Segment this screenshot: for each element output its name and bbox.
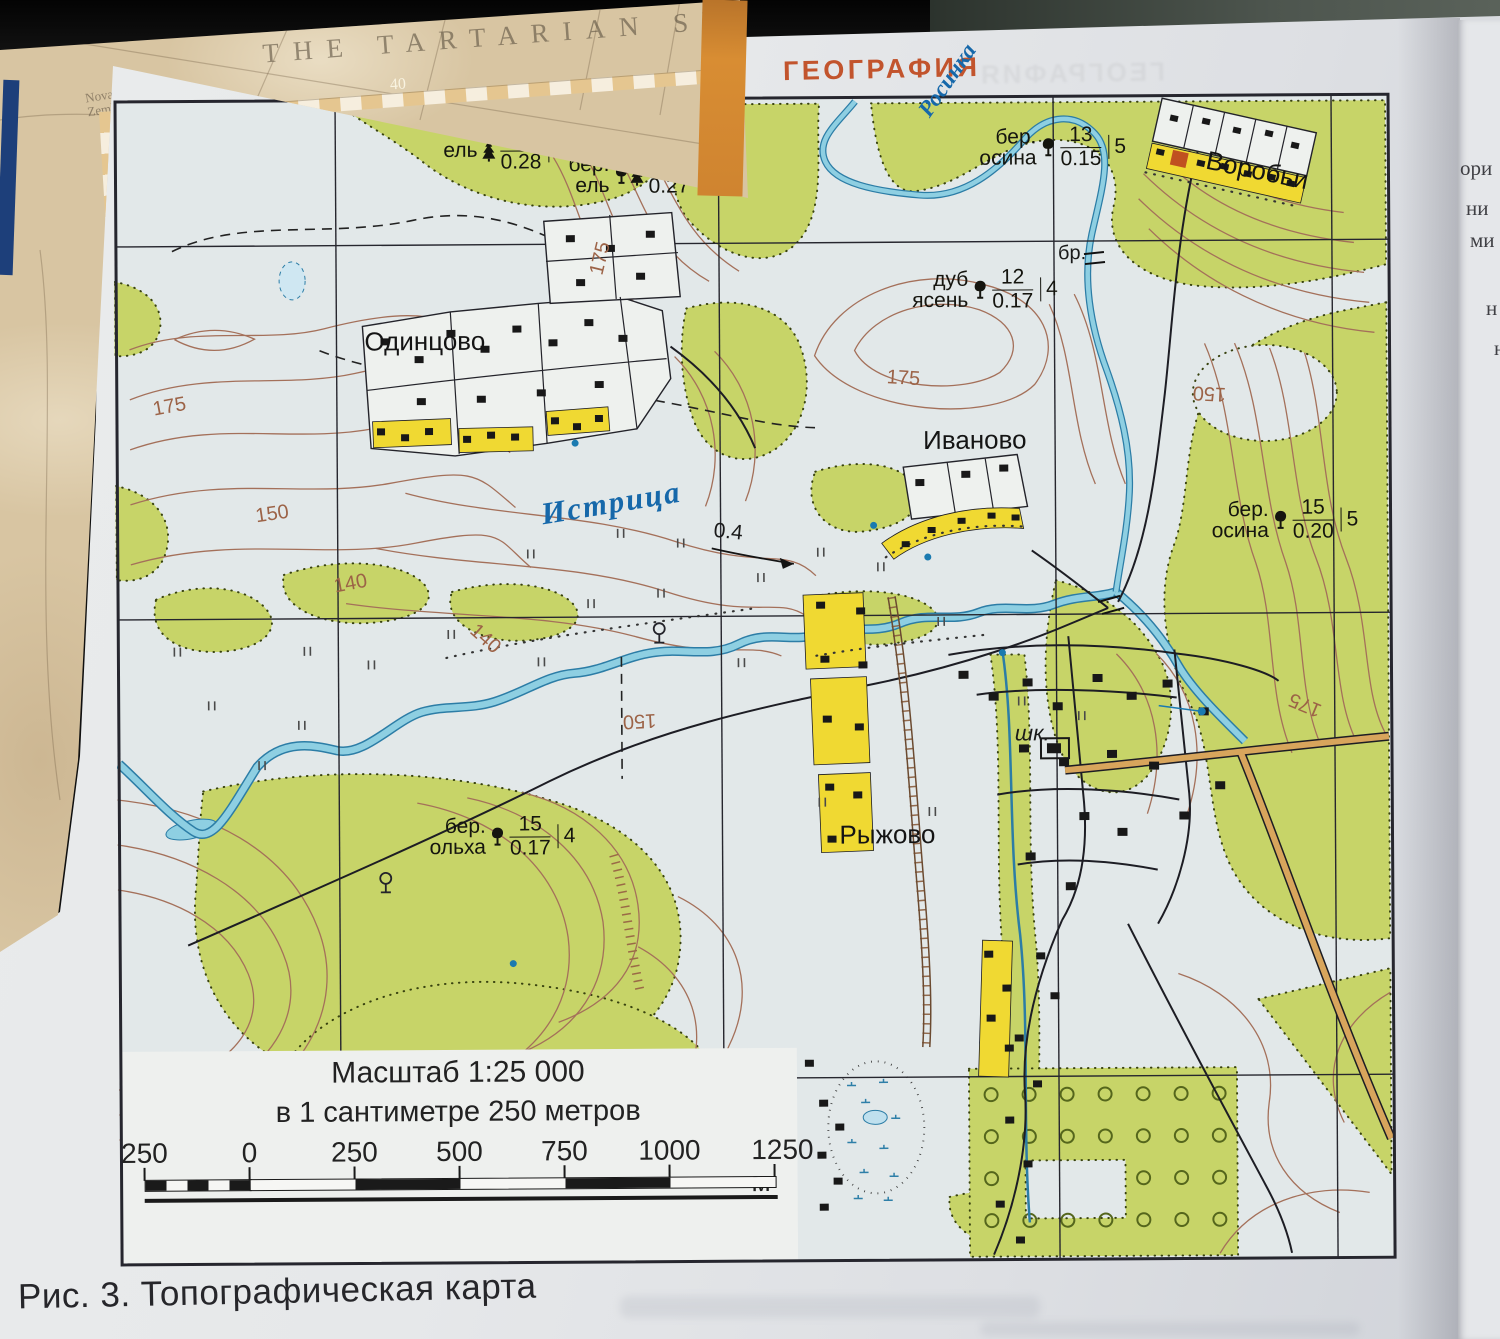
village-label-odintsovo: Одинцово	[364, 326, 485, 358]
textbook-page: ГЕОГРАФИЯ ГЕОГРАФИЯ	[0, 0, 1500, 1339]
stand-spacing: 5	[1341, 508, 1359, 532]
scale-tick-label: 1250 м	[751, 1134, 814, 1198]
intermittent-pond	[279, 262, 305, 300]
scale-title: Масштаб 1:25 000	[119, 1054, 797, 1092]
scale-subtitle: в 1 сантиметре 250 метров	[119, 1094, 797, 1131]
stand-species: ель	[568, 175, 609, 197]
scale-tick-label: 750	[541, 1135, 588, 1167]
river-depth-label: 0.4	[713, 519, 744, 546]
deciduous-tree-icon	[1041, 137, 1055, 158]
scale-tick-label: 250	[331, 1136, 378, 1168]
stand-species: бер.	[1211, 499, 1268, 521]
village-label-ryzhovo: Рыжово	[839, 819, 935, 851]
forest-stand-label: дубясень 120.17 4	[912, 266, 1058, 313]
contour-label: 150	[1192, 381, 1226, 406]
stand-height: 15	[510, 813, 551, 837]
adjacent-page: ори ни ми н н	[1458, 20, 1500, 1339]
cutoff-text: ми	[1470, 228, 1495, 253]
stand-species: ель	[443, 140, 477, 162]
bridge-label: бр.	[1058, 242, 1086, 265]
stand-species: осина	[1212, 520, 1269, 542]
text-bleed	[980, 1322, 1360, 1336]
scale-tick-label: 500	[436, 1136, 483, 1168]
scale-tick-label: 0	[242, 1137, 258, 1169]
school-label: шк.	[1015, 720, 1050, 746]
forest-stand-label: бер.осина 130.15 5	[979, 124, 1126, 171]
orchard	[969, 1067, 1238, 1257]
scale-bar	[250, 1176, 777, 1191]
stand-species: бер.	[429, 816, 485, 838]
scale-bar-baseline	[145, 1195, 778, 1202]
stand-species: ольха	[430, 837, 486, 859]
cutoff-text: н	[1494, 336, 1500, 361]
stand-spacing: 4	[558, 824, 576, 848]
stand-species: дуб	[912, 269, 968, 291]
contour-label: 150	[254, 501, 290, 529]
stand-diameter: 0.17	[510, 837, 551, 860]
scale-tick-label: 1000	[638, 1134, 700, 1166]
stand-diameter: 0.20	[1293, 520, 1334, 543]
scale-bar-extension	[145, 1179, 252, 1192]
deciduous-tree-icon	[1274, 510, 1288, 531]
stand-species: ясень	[912, 290, 968, 312]
village-label-ivanovo: Иваново	[923, 424, 1027, 456]
stand-height: 12	[992, 266, 1033, 290]
stand-spacing: 5	[1108, 135, 1126, 159]
cutoff-text: н	[1486, 296, 1497, 321]
stand-diameter: 0.28	[501, 151, 542, 174]
forest-stand-label: бер.ольха 150.17 4	[429, 813, 575, 860]
textbook-photo: ГЕОГРАФИЯ ГЕОГРАФИЯ	[0, 0, 1500, 1339]
stand-diameter: 0.17	[992, 290, 1033, 313]
deciduous-tree-icon	[491, 826, 505, 847]
contour-label: 175	[886, 366, 921, 391]
deciduous-tree-icon	[973, 279, 987, 300]
map-scale: Масштаб 1:25 000 в 1 сантиметре 250 метр…	[119, 1048, 798, 1264]
topographic-map: Одинцово Иваново Воробьи Рыжово Истрица …	[113, 92, 1397, 1267]
stand-species: осина	[979, 148, 1036, 170]
header-bleed-text: ГЕОГРАФИЯ	[978, 56, 1165, 90]
figure-caption: Рис. 3. Топографическая карта	[18, 1267, 537, 1318]
stand-diameter: 0.15	[1060, 148, 1101, 171]
stand-height: 15	[1293, 497, 1334, 521]
contour-label: 150	[622, 708, 657, 733]
stand-species: бер.	[979, 126, 1036, 148]
cutoff-text: ни	[1466, 196, 1488, 221]
text-bleed	[620, 1296, 1040, 1318]
scale-tick-label: 250	[121, 1138, 168, 1170]
orange-bookmark	[697, 0, 747, 197]
cutoff-text: ори	[1460, 156, 1492, 181]
forest-stand-label: бер.осина 150.20 5	[1211, 496, 1358, 543]
stand-height: 13	[1060, 124, 1101, 148]
page-shadow	[1398, 18, 1460, 1339]
stand-spacing: 4	[1040, 277, 1058, 301]
